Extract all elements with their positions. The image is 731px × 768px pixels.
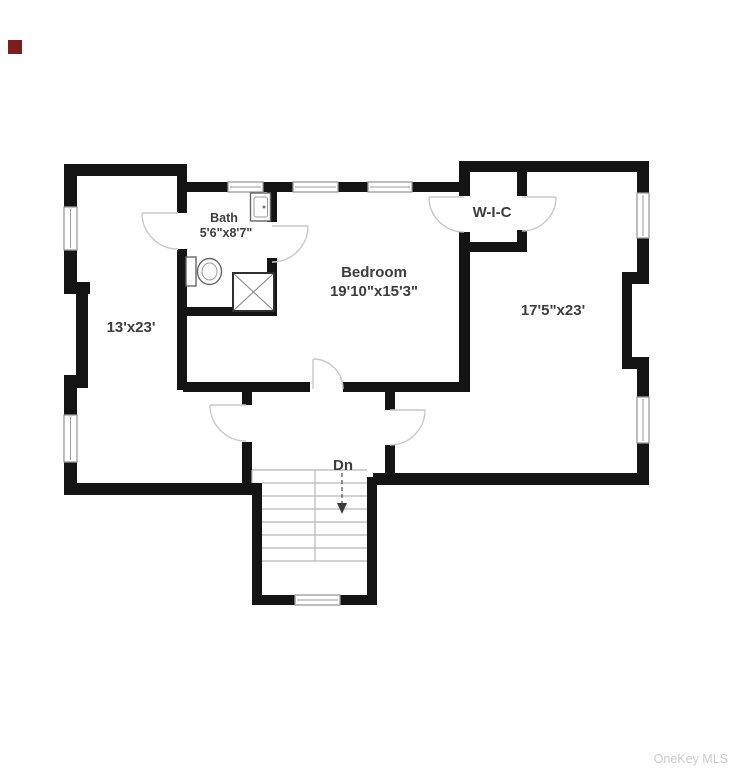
wall-segment [517,172,527,196]
wall-segment [252,595,295,605]
wall-segment [64,483,262,495]
window-left-upper [64,207,77,250]
wall-segment [64,164,77,208]
wall-segment [637,369,649,397]
wall-segment [64,282,90,294]
window-left-lower [64,415,77,462]
wall-segment [622,284,632,359]
wall-segment [252,483,262,605]
walls [64,161,649,605]
wall-segment [622,272,649,284]
bath-bedroom-door [272,226,308,262]
wall-segment [385,390,395,410]
bath-name-label: Bath [210,211,238,225]
wic-right-door [522,197,556,231]
bath-dims-label: 5'6"x8'7" [200,226,253,240]
shower-icon [233,273,274,311]
wall-segment [64,250,77,284]
wall-segment [242,390,252,405]
wall-segment [459,161,649,172]
wall-segment [385,445,395,477]
window-right-lower [637,397,649,443]
floorplan-drawing: 13'x23' Bath 5'6"x8'7" Bedroom 19'10"x15… [0,0,731,768]
left-room-dims-label: 13'x23' [107,319,156,336]
stairs-dn-label: Dn [333,457,353,474]
wall-segment [338,182,368,192]
window-stairwell-bottom [295,595,340,605]
window-bedroom-top-left [293,182,338,192]
window-right-upper [637,193,649,238]
left-room-bath-door [142,213,178,249]
watermark-text: OneKey MLS [654,752,728,766]
wall-segment [242,442,252,485]
wall-segment [459,242,527,252]
red-square-marker [8,40,22,54]
staircase [252,470,367,561]
wic-left-door [429,197,464,232]
bedroom-hall-door [313,359,343,389]
wall-segment [64,164,187,176]
wall-segment [412,182,462,192]
wall-segment [367,477,377,605]
wall-segment [340,595,377,605]
hall-rightroom-door [390,410,425,445]
wic-name-label: W-I-C [473,204,512,221]
sink-icon [251,193,271,221]
wall-segment [183,182,228,192]
windows [64,182,649,605]
bedroom-name-label: Bedroom [341,264,407,281]
wall-segment [343,382,459,392]
toilet-icon [186,257,222,286]
wall-segment [64,375,88,388]
window-bedroom-top-right [368,182,412,192]
hall-leftroom-door [210,405,246,441]
wall-segment [64,388,77,416]
wall-segment [373,473,649,485]
wall-segment [637,238,649,274]
wall-segment [459,232,470,392]
wall-segment [622,357,649,369]
wall-segment [637,172,649,193]
floorplan-canvas: 13'x23' Bath 5'6"x8'7" Bedroom 19'10"x15… [0,0,731,768]
right-room-dims-label: 17'5"x23' [521,302,585,319]
bedroom-dims-label: 19'10"x15'3" [330,283,418,300]
wall-segment [76,294,88,378]
window-bath-top [228,182,263,192]
wall-segment [263,182,293,192]
